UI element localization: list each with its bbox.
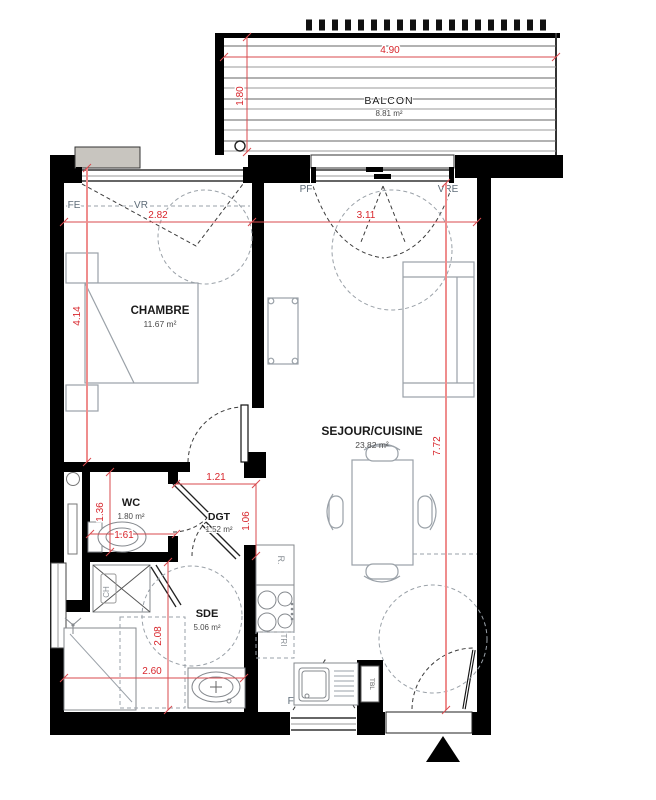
balcony: BALCON 8.81 m² 4.90 1.80	[215, 25, 560, 156]
sejour-bay-window: PF VRE	[300, 155, 459, 258]
floor-plan: BALCON 8.81 m² 4.90 1.80	[0, 0, 656, 800]
wall-right	[477, 178, 491, 735]
svg-text:1.80: 1.80	[235, 86, 246, 106]
svg-text:7.72: 7.72	[432, 436, 443, 456]
balcony-top-wall	[215, 33, 560, 38]
wc-label: WC	[122, 497, 140, 509]
svg-text:1.21: 1.21	[206, 472, 226, 483]
blind-box	[311, 155, 454, 168]
chambre-window-type: FE	[68, 200, 81, 211]
entrance-sill	[386, 712, 472, 733]
dim-balcony-depth: 1.80	[235, 33, 251, 156]
chambre-window-shutter: VR	[134, 200, 148, 211]
svg-text:2.82: 2.82	[148, 210, 168, 221]
chambre-label: CHAMBRE	[131, 305, 190, 317]
dim-top-chain: 2.82 3.11	[60, 210, 481, 226]
electrical-panel-label: TBL	[368, 678, 375, 690]
water-heater-symbol: CH	[93, 565, 150, 612]
sofa-symbol	[403, 262, 474, 397]
chambre-window: FE VR	[66, 147, 250, 246]
kitchen: R. TRI TBL	[256, 545, 379, 705]
dim-sejour-height: 7.72	[432, 179, 450, 714]
fridge-symbol	[256, 545, 294, 585]
svg-text:4.90: 4.90	[380, 45, 400, 56]
chambre-door	[188, 405, 248, 462]
fridge-label: R.	[276, 556, 286, 565]
entrance-arrow-icon	[426, 736, 460, 762]
sde-area: 5.06 m²	[193, 623, 220, 632]
balcony-label: BALCON	[364, 95, 413, 107]
radiator-symbol	[68, 504, 77, 554]
sde-door	[151, 565, 181, 607]
sejour-bay-shutter: VRE	[438, 184, 459, 195]
sink-symbol	[294, 663, 358, 705]
entrance-door	[386, 648, 474, 733]
balcony-drain-icon	[235, 141, 245, 151]
waste-sorting-label: TRI	[279, 634, 288, 647]
svg-text:4.14: 4.14	[72, 306, 83, 326]
svg-text:1.06: 1.06	[241, 511, 252, 531]
dgt-label: DGT	[208, 511, 231, 523]
hob-symbol	[256, 585, 294, 632]
tv-stand	[268, 298, 298, 364]
washbasin-symbol	[188, 668, 245, 708]
sde-label: SDE	[196, 608, 219, 620]
column-symbol	[67, 473, 80, 486]
wall-bottom	[50, 712, 290, 735]
sejour-bay-type: PF	[300, 184, 313, 195]
wc-area: 1.80 m²	[117, 512, 144, 521]
nightstand	[66, 385, 98, 411]
nightstand	[66, 253, 98, 283]
bed-symbol	[85, 283, 198, 383]
svg-text:1.36: 1.36	[95, 502, 106, 522]
water-heater-label: CH	[102, 586, 111, 598]
balcony-left-wall	[215, 33, 224, 155]
svg-text:2.08: 2.08	[153, 626, 164, 646]
balcony-area: 8.81 m²	[375, 109, 402, 118]
sejour-area: 23.82 m²	[355, 440, 389, 450]
svg-text:1.61: 1.61	[114, 530, 134, 541]
dim-balcony-width: 4.90	[220, 45, 560, 61]
dining-table	[327, 444, 436, 582]
sejour-label: SEJOUR/CUISINE	[321, 424, 422, 438]
chambre-area: 11.67 m²	[144, 319, 177, 329]
shutter-box	[75, 147, 140, 168]
dgt-area: 1.52 m²	[205, 525, 232, 534]
svg-text:2.60: 2.60	[142, 666, 162, 677]
svg-text:3.11: 3.11	[357, 210, 376, 221]
shower-symbol	[64, 618, 136, 710]
